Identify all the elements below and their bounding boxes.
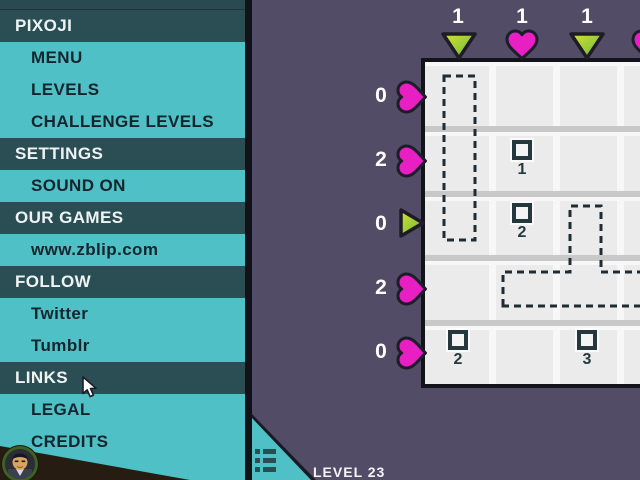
column-clue-count: 1 bbox=[507, 5, 537, 29]
sidebar-item-tumblr[interactable]: Tumblr bbox=[0, 330, 245, 362]
sidebar-item-legal[interactable]: LEGAL bbox=[0, 394, 245, 426]
cell-clue-count: 1 bbox=[518, 162, 527, 178]
row-clue-count: 0 bbox=[369, 212, 393, 236]
sidebar-item-zblip-link[interactable]: www.zblip.com bbox=[0, 234, 245, 266]
grid-line-v bbox=[617, 62, 624, 384]
square-clue-icon bbox=[448, 330, 468, 350]
level-indicator: LEVEL 23 bbox=[313, 464, 385, 480]
cell-clue: 1 bbox=[509, 140, 535, 178]
sidebar-item-menu[interactable]: MENU bbox=[0, 42, 245, 74]
heart-icon bbox=[395, 273, 429, 305]
heart-icon bbox=[395, 81, 429, 113]
cell-clue: 2 bbox=[445, 330, 471, 368]
sidebar-top-strip bbox=[0, 0, 245, 10]
triangle-down-icon bbox=[568, 31, 606, 61]
sidebar-item-challenge-levels[interactable]: CHALLENGE LEVELS bbox=[0, 106, 245, 138]
grid-highlight bbox=[425, 197, 640, 201]
heart-icon bbox=[395, 145, 429, 177]
avatar-face bbox=[5, 449, 35, 479]
grid-line-v bbox=[553, 62, 560, 384]
sidebar-section-follow: FOLLOW bbox=[0, 266, 245, 298]
sidebar-section-our-games: OUR GAMES bbox=[0, 202, 245, 234]
column-clue-count: 1 bbox=[443, 5, 473, 29]
menu-grid-icon[interactable] bbox=[255, 449, 276, 472]
square-clue-icon bbox=[577, 330, 597, 350]
cell-clue: 2 bbox=[509, 203, 535, 241]
app-root: PIXOJI MENU LEVELS CHALLENGE LEVELS SETT… bbox=[0, 0, 640, 480]
sidebar-section-settings: SETTINGS bbox=[0, 138, 245, 170]
row-clue-count: 2 bbox=[369, 148, 393, 172]
cell-clue-count: 3 bbox=[583, 352, 592, 368]
heart-icon bbox=[395, 337, 429, 369]
sidebar-divider bbox=[245, 0, 252, 480]
triangle-right-icon bbox=[398, 207, 426, 239]
grid-highlight bbox=[425, 132, 640, 136]
heart-icon bbox=[505, 29, 539, 61]
sidebar-section-links: LINKS bbox=[0, 362, 245, 394]
column-clue-count: 1 bbox=[572, 5, 602, 29]
sidebar-item-levels[interactable]: LEVELS bbox=[0, 74, 245, 106]
row-clue-count: 2 bbox=[369, 276, 393, 300]
square-clue-icon bbox=[512, 140, 532, 160]
square-clue-icon bbox=[512, 203, 532, 223]
sidebar-menu: PIXOJI MENU LEVELS CHALLENGE LEVELS SETT… bbox=[0, 0, 245, 480]
grid-highlight bbox=[425, 261, 640, 265]
cell-clue-count: 2 bbox=[454, 352, 463, 368]
grid-line-v bbox=[489, 62, 496, 384]
sidebar-title-pixoji: PIXOJI bbox=[0, 10, 245, 42]
cell-clue: 3 bbox=[574, 330, 600, 368]
avatar[interactable] bbox=[2, 446, 38, 480]
sidebar-item-twitter[interactable]: Twitter bbox=[0, 298, 245, 330]
puzzle-board[interactable]: 1 2 2 3 bbox=[421, 58, 640, 388]
heart-icon bbox=[631, 29, 640, 61]
triangle-down-icon bbox=[440, 31, 478, 61]
row-clue-count: 0 bbox=[369, 340, 393, 364]
row-clue-count: 0 bbox=[369, 84, 393, 108]
grid-highlight bbox=[425, 62, 640, 66]
cell-clue-count: 2 bbox=[518, 225, 527, 241]
sidebar-item-sound-on[interactable]: SOUND ON bbox=[0, 170, 245, 202]
